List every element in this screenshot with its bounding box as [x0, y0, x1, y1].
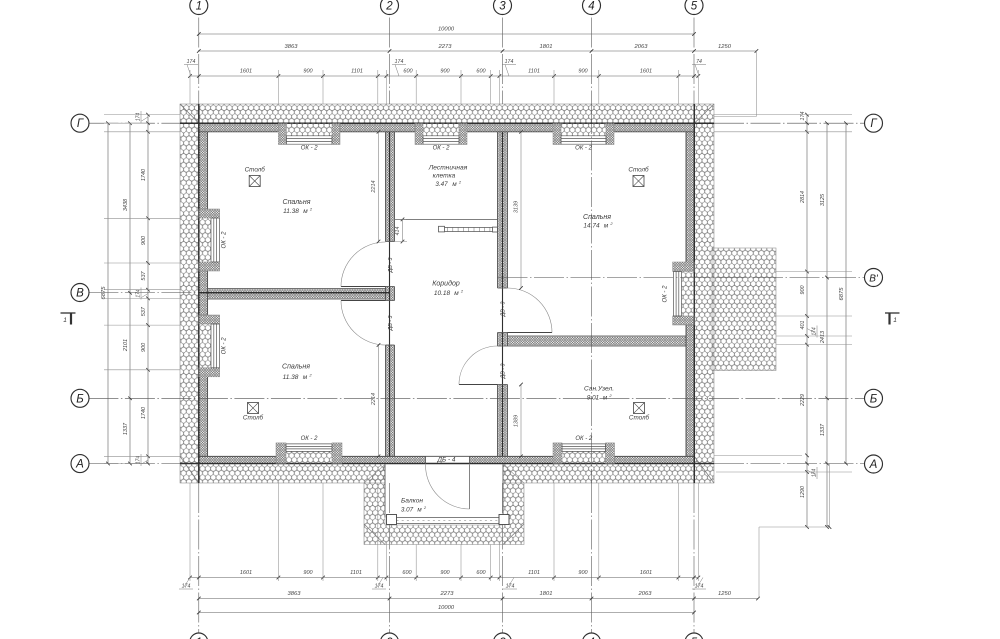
- svg-text:600: 600: [476, 570, 486, 576]
- svg-text:ДВ - 3: ДВ - 3: [501, 363, 507, 379]
- svg-text:м: м: [454, 290, 459, 297]
- svg-text:ДВ - 3: ДВ - 3: [388, 315, 394, 331]
- svg-text:ОК - 2: ОК - 2: [222, 231, 228, 249]
- svg-text:ОК - 2: ОК - 2: [433, 146, 451, 152]
- svg-text:м: м: [452, 181, 457, 188]
- svg-text:Балкон: Балкон: [401, 498, 423, 505]
- svg-text:174: 174: [136, 289, 142, 298]
- svg-text:Столб: Столб: [628, 166, 649, 174]
- svg-text:1101: 1101: [350, 570, 362, 576]
- svg-text:Г: Г: [77, 118, 84, 130]
- svg-text:600: 600: [402, 570, 412, 576]
- svg-text:11.38: 11.38: [283, 374, 299, 381]
- svg-text:3.47: 3.47: [435, 181, 448, 188]
- svg-text:1: 1: [893, 317, 897, 324]
- svg-text:174: 174: [506, 584, 515, 590]
- svg-text:ОК - 2: ОК - 2: [222, 337, 228, 355]
- svg-text:Лестничная: Лестничная: [428, 165, 468, 172]
- svg-text:174: 174: [800, 112, 806, 121]
- svg-text:В': В': [869, 274, 879, 285]
- svg-text:Г: Г: [870, 118, 877, 130]
- svg-text:А: А: [75, 459, 84, 471]
- svg-text:ОК - 2: ОК - 2: [575, 146, 593, 152]
- svg-text:м: м: [303, 208, 308, 215]
- svg-text:900: 900: [440, 570, 450, 576]
- svg-text:ОК - 2: ОК - 2: [663, 285, 669, 303]
- svg-text:174: 174: [136, 113, 142, 122]
- svg-text:174: 174: [187, 59, 196, 65]
- svg-text:2063: 2063: [638, 591, 653, 597]
- svg-text:9.01: 9.01: [587, 395, 599, 402]
- svg-text:Спальня: Спальня: [283, 199, 311, 206]
- svg-text:Столб: Столб: [243, 414, 264, 422]
- svg-text:174: 174: [136, 456, 142, 465]
- svg-text:174: 174: [182, 584, 191, 590]
- svg-text:6875: 6875: [101, 286, 107, 300]
- svg-text:1101: 1101: [528, 570, 540, 576]
- svg-text:900: 900: [578, 570, 588, 576]
- svg-text:10000: 10000: [438, 605, 455, 611]
- svg-text:414: 414: [395, 227, 401, 236]
- svg-text:900: 900: [578, 69, 588, 75]
- svg-text:2101: 2101: [123, 339, 129, 352]
- svg-text:3863: 3863: [285, 44, 299, 50]
- svg-text:3139: 3139: [514, 201, 520, 213]
- svg-text:2229: 2229: [800, 394, 806, 407]
- svg-text:Сан.Узел.: Сан.Узел.: [584, 386, 614, 393]
- svg-text:1801: 1801: [540, 44, 553, 50]
- svg-text:1740: 1740: [141, 168, 147, 181]
- svg-text:м: м: [417, 507, 422, 514]
- svg-text:174: 174: [375, 584, 384, 590]
- svg-text:5: 5: [691, 1, 698, 13]
- svg-text:900: 900: [440, 69, 450, 75]
- svg-text:м: м: [604, 223, 609, 230]
- svg-text:Б: Б: [76, 393, 84, 405]
- svg-text:ОК - 2: ОК - 2: [301, 436, 319, 442]
- svg-text:14.74: 14.74: [583, 223, 600, 230]
- svg-text:3125: 3125: [820, 193, 826, 206]
- svg-text:74: 74: [696, 59, 702, 65]
- svg-text:1801: 1801: [540, 591, 553, 597]
- svg-text:ДВ - 3: ДВ - 3: [388, 257, 394, 273]
- svg-text:1290: 1290: [800, 486, 806, 498]
- svg-text:2273: 2273: [440, 591, 455, 597]
- svg-text:2063: 2063: [634, 44, 649, 50]
- svg-text:м: м: [303, 374, 308, 381]
- svg-text:6875: 6875: [839, 287, 845, 301]
- svg-text:537: 537: [141, 306, 147, 316]
- svg-text:Спальня: Спальня: [583, 214, 611, 221]
- svg-text:174: 174: [505, 59, 514, 65]
- svg-text:Столб: Столб: [245, 166, 266, 174]
- svg-text:Столб: Столб: [629, 414, 650, 422]
- svg-text:1601: 1601: [240, 570, 252, 576]
- svg-text:Б: Б: [870, 393, 878, 405]
- svg-text:1601: 1601: [640, 570, 652, 576]
- svg-text:174: 174: [395, 59, 404, 65]
- svg-text:2: 2: [385, 1, 393, 13]
- svg-text:1250: 1250: [718, 44, 732, 50]
- svg-text:1101: 1101: [528, 69, 540, 75]
- svg-text:ДБ - 4: ДБ - 4: [437, 457, 456, 464]
- svg-text:ОК - 2: ОК - 2: [301, 146, 319, 152]
- svg-text:3863: 3863: [288, 591, 302, 597]
- svg-text:2413: 2413: [820, 330, 826, 344]
- svg-text:3: 3: [499, 1, 506, 13]
- svg-text:1: 1: [63, 317, 67, 324]
- svg-text:2214: 2214: [371, 393, 377, 406]
- svg-text:А: А: [869, 459, 878, 471]
- svg-text:1740: 1740: [141, 406, 147, 419]
- svg-text:1389: 1389: [514, 415, 520, 427]
- svg-text:900: 900: [303, 69, 313, 75]
- svg-text:10000: 10000: [438, 27, 455, 33]
- svg-text:3438: 3438: [123, 198, 129, 211]
- svg-text:2814: 2814: [800, 191, 806, 204]
- svg-text:1337: 1337: [820, 423, 826, 436]
- svg-text:2214: 2214: [371, 180, 377, 193]
- svg-text:2273: 2273: [438, 44, 453, 50]
- svg-text:900: 900: [141, 342, 147, 352]
- svg-text:401: 401: [800, 321, 806, 330]
- svg-text:1101: 1101: [351, 69, 363, 75]
- svg-text:900: 900: [141, 235, 147, 245]
- svg-text:Спальня: Спальня: [282, 364, 310, 371]
- svg-text:900: 900: [303, 570, 313, 576]
- svg-text:1601: 1601: [640, 69, 652, 75]
- svg-text:537: 537: [141, 270, 147, 280]
- svg-text:11.38: 11.38: [283, 208, 299, 215]
- svg-text:В: В: [76, 288, 84, 300]
- svg-text:Коридор: Коридор: [432, 280, 460, 288]
- svg-text:ДВ - 3: ДВ - 3: [501, 301, 507, 317]
- svg-text:1337: 1337: [123, 422, 129, 435]
- svg-text:10.18: 10.18: [434, 290, 451, 297]
- svg-text:1601: 1601: [240, 69, 252, 75]
- svg-text:1250: 1250: [718, 591, 732, 597]
- svg-text:174: 174: [695, 584, 704, 590]
- svg-text:клетка: клетка: [433, 173, 456, 180]
- svg-text:м: м: [603, 395, 608, 402]
- svg-text:600: 600: [476, 69, 486, 75]
- svg-text:4: 4: [588, 1, 594, 13]
- svg-text:900: 900: [800, 286, 806, 295]
- svg-text:3.07: 3.07: [401, 507, 414, 514]
- svg-text:ОК - 2: ОК - 2: [575, 436, 593, 442]
- svg-text:600: 600: [403, 69, 413, 75]
- svg-text:1: 1: [196, 1, 202, 13]
